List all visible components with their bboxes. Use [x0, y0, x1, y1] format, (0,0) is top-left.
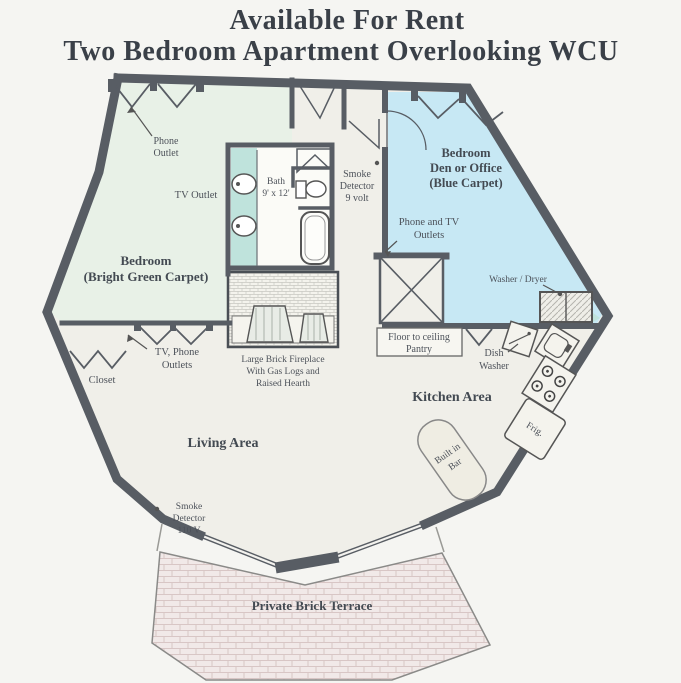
smoke-detector-entry-dot	[375, 161, 379, 165]
bedroom-den-label-line1: Bedroom	[441, 146, 491, 160]
fireplace-label-line2: With Gas Logs and	[246, 367, 319, 377]
scanned-floorplan-page: Available For Rent Two Bedroom Apartment…	[0, 0, 681, 683]
bedroom-den-label-line3: (Blue Carpet)	[429, 176, 502, 190]
terrace-label: Private Brick Terrace	[252, 598, 373, 613]
bedroom-green-label-line1: Bedroom	[120, 253, 171, 268]
pantry-label-line2: Pantry	[406, 344, 432, 355]
dishwasher-label-line1: Dish	[485, 348, 504, 359]
pantry-label-line1: Floor to ceiling	[388, 332, 450, 343]
smoke-detector-living-line1: Smoke	[176, 502, 202, 512]
closet-label: Closet	[89, 375, 116, 386]
toilet-tank-icon	[296, 181, 306, 198]
tv-phone-outlets-label-line2: Outlets	[162, 360, 192, 371]
washer-dryer-arrow-dot	[558, 292, 562, 296]
bath-label-line1: Bath	[267, 177, 285, 187]
fireplace-label-line1: Large Brick Fireplace	[241, 355, 324, 365]
bedroom-den-label-line2: Den or Office	[430, 161, 502, 175]
bedroom-green-label-line2: (Bright Green Carpet)	[84, 269, 209, 284]
bathroom-vanity-counter	[231, 148, 257, 266]
toilet-bowl-icon	[306, 181, 326, 197]
phone-tv-outlets-label-line2: Outlets	[414, 230, 444, 241]
page-title-line2: Two Bedroom Apartment Overlooking WCU	[63, 36, 618, 67]
bath-label-line2: 9' x 12'	[262, 189, 289, 199]
smoke-detector-entry-line3: 9 volt	[345, 193, 368, 204]
tv-phone-outlets-label-line1: TV, Phone	[155, 347, 199, 358]
washer-dryer-label: Washer / Dryer	[489, 275, 548, 285]
sink-top-icon	[232, 174, 256, 194]
gas-log-large	[247, 306, 293, 342]
sink-bottom-icon	[232, 216, 256, 236]
fireplace	[228, 272, 338, 347]
storage-closet-x	[380, 257, 443, 323]
phone-outlet-label-line1: Phone	[154, 136, 180, 147]
phone-tv-outlets-label-line1: Phone and TV	[399, 217, 460, 228]
floorplan-drawing: Available For Rent Two Bedroom Apartment…	[0, 0, 681, 683]
fireplace-label-line3: Raised Hearth	[256, 379, 310, 389]
phone-outlet-label-line2: Outlet	[154, 148, 179, 159]
dishwasher-label-line2: Washer	[479, 361, 509, 372]
smoke-detector-living-line2: Detector	[173, 514, 207, 524]
kitchen-area-label: Kitchen Area	[412, 390, 491, 405]
pantry-label-box: Floor to ceiling Pantry	[377, 328, 462, 356]
page-title-line1: Available For Rent	[229, 5, 464, 36]
smoke-detector-living-line3: 110 V	[178, 526, 201, 536]
living-area-label: Living Area	[188, 436, 259, 451]
smoke-detector-living-dot	[155, 507, 159, 511]
washer-dryer-unit	[540, 292, 592, 322]
smoke-detector-entry-line1: Smoke	[343, 169, 371, 180]
smoke-detector-entry-line2: Detector	[340, 181, 375, 192]
tv-outlet-label: TV Outlet	[175, 190, 218, 201]
